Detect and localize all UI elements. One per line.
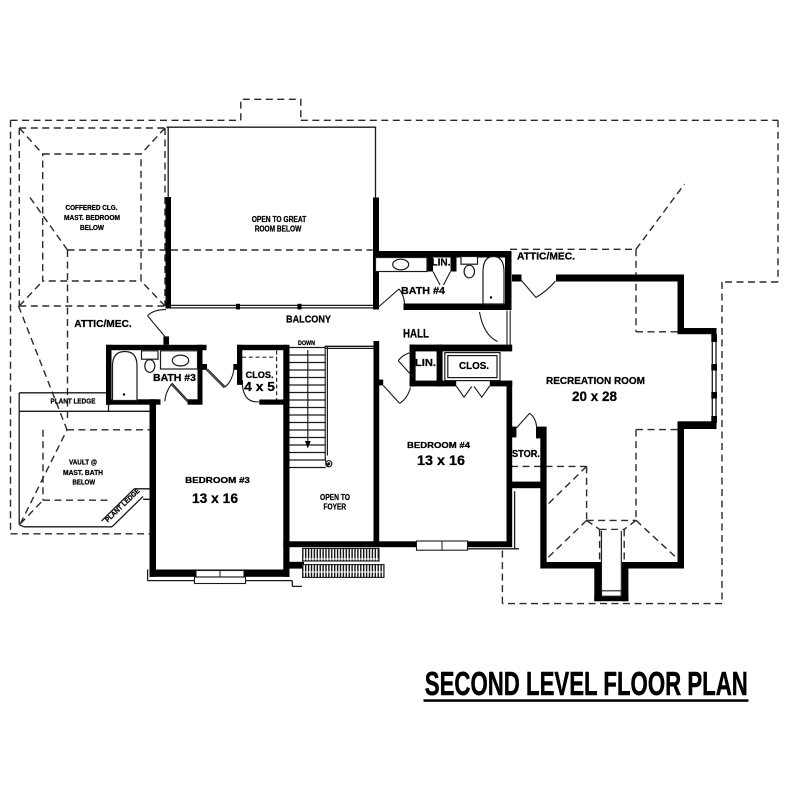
- svg-text:BALCONY: BALCONY: [286, 314, 331, 326]
- svg-text:ROOM BELOW: ROOM BELOW: [255, 225, 302, 234]
- svg-text:LIN.: LIN.: [432, 257, 451, 269]
- svg-text:ATTIC/MEC.: ATTIC/MEC.: [517, 252, 575, 263]
- svg-text:BATH #4: BATH #4: [401, 285, 445, 297]
- svg-text:PLANT LEDGE: PLANT LEDGE: [51, 399, 96, 406]
- svg-text:BATH #3: BATH #3: [153, 372, 196, 384]
- svg-text:BEDROOM #4: BEDROOM #4: [407, 440, 470, 450]
- svg-text:4 x 5: 4 x 5: [244, 379, 275, 394]
- svg-text:CLOS.: CLOS.: [459, 360, 489, 372]
- svg-text:ATTIC/MEC.: ATTIC/MEC.: [74, 319, 132, 330]
- svg-text:RECREATION ROOM: RECREATION ROOM: [546, 375, 645, 387]
- svg-text:OPEN TO GREAT: OPEN TO GREAT: [252, 215, 307, 224]
- svg-text:DOWN: DOWN: [298, 340, 315, 347]
- svg-text:BELOW: BELOW: [73, 480, 96, 487]
- svg-text:SECOND LEVEL FLOOR PLAN: SECOND LEVEL FLOOR PLAN: [425, 665, 748, 702]
- svg-text:LIN.: LIN.: [415, 358, 436, 369]
- svg-text:13 x 16: 13 x 16: [192, 491, 238, 506]
- svg-text:13 x 16: 13 x 16: [417, 453, 466, 468]
- svg-text:VAULT @: VAULT @: [69, 460, 97, 467]
- svg-text:COFFERED CLG.: COFFERED CLG.: [66, 205, 118, 212]
- svg-text:20 x 28: 20 x 28: [572, 389, 617, 404]
- svg-text:HALL: HALL: [403, 329, 429, 341]
- svg-text:BEDROOM #3: BEDROOM #3: [185, 475, 250, 485]
- svg-text:OPEN TO: OPEN TO: [320, 493, 350, 502]
- svg-text:STOR.: STOR.: [512, 448, 540, 460]
- svg-text:MAST. BEDROOM: MAST. BEDROOM: [64, 215, 120, 222]
- svg-text:BELOW: BELOW: [80, 225, 104, 232]
- svg-text:MAST. BATH: MAST. BATH: [63, 470, 103, 477]
- svg-text:FOYER: FOYER: [324, 503, 347, 512]
